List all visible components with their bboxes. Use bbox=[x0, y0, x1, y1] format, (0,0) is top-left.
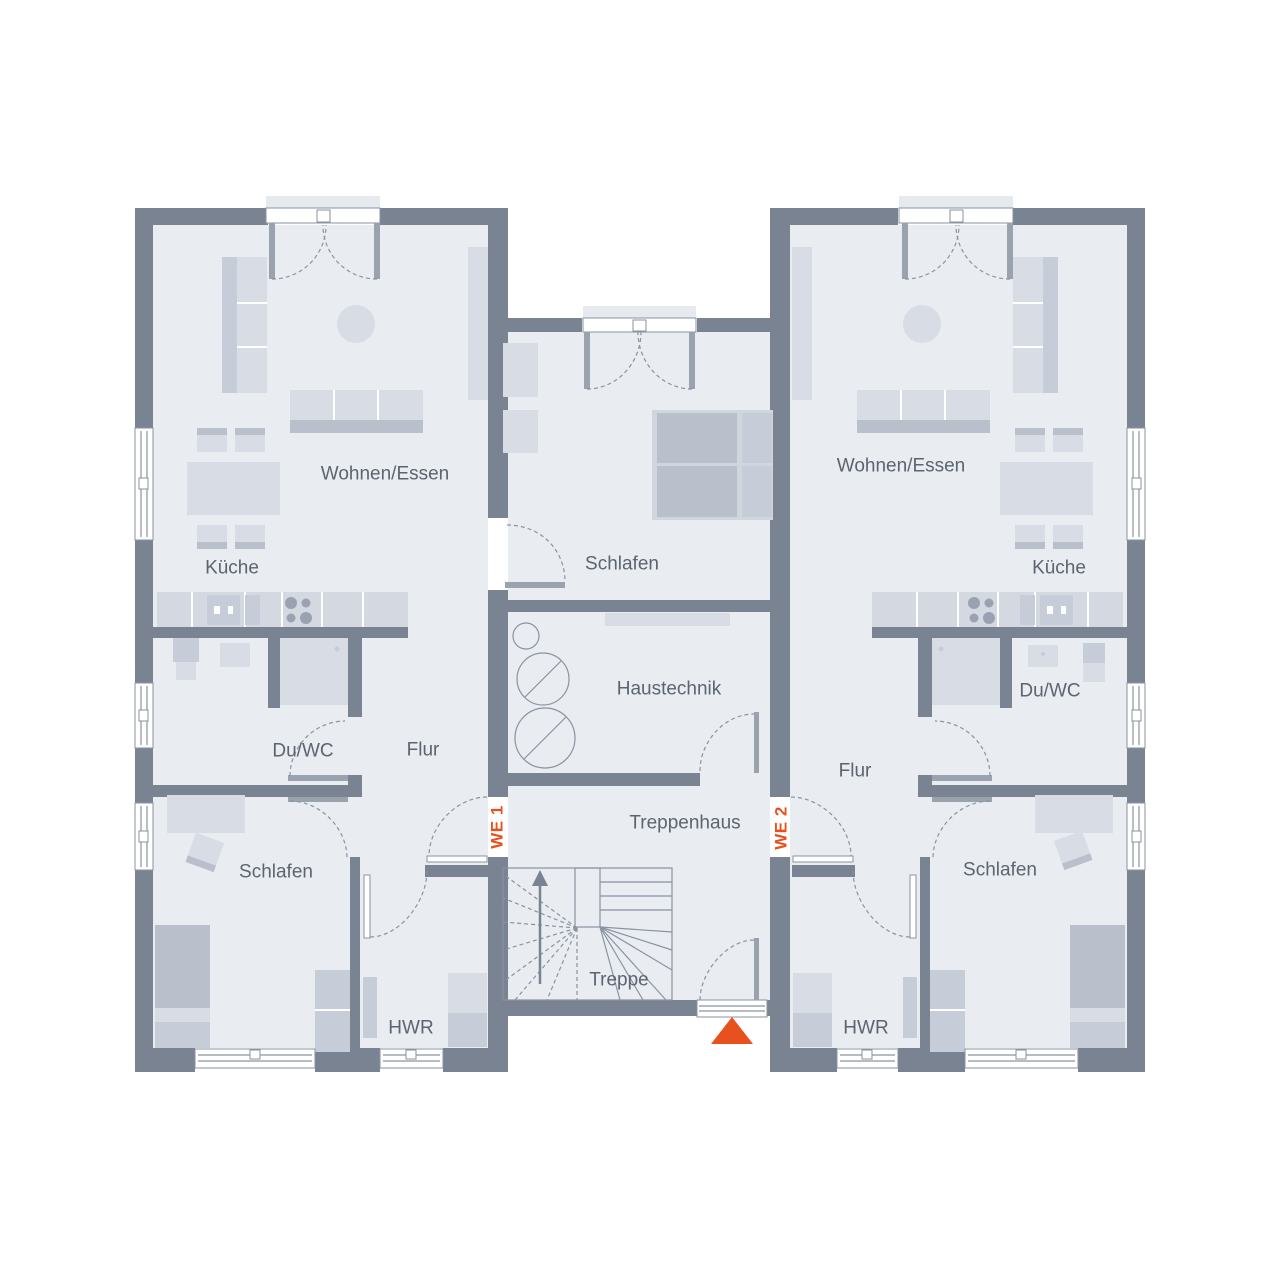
tall-cabinet bbox=[1013, 257, 1058, 393]
round-table bbox=[903, 305, 941, 343]
room-label-treppenhaus: Treppenhaus bbox=[629, 814, 740, 833]
toilet bbox=[173, 638, 199, 662]
round-table bbox=[337, 305, 375, 343]
room-label-schlafen-we2: Schlafen bbox=[963, 861, 1037, 880]
tall-cabinet bbox=[222, 257, 267, 393]
room-label-kueche-we2: Küche bbox=[1032, 559, 1086, 578]
dresser bbox=[1035, 795, 1113, 833]
room-label-hwr-we2: HWR bbox=[843, 1019, 888, 1038]
appliance bbox=[245, 595, 260, 625]
unit-badge-we2: WE 2 bbox=[773, 806, 790, 850]
cabinet bbox=[1083, 643, 1105, 663]
room-label-hwr-we1: HWR bbox=[388, 1019, 433, 1038]
room-label-duwc-we1: Du/WC bbox=[272, 742, 333, 761]
room-label-haustechnik: Haustechnik bbox=[617, 680, 722, 699]
room-label-schlafen-core: Schlafen bbox=[585, 555, 659, 574]
shelf bbox=[503, 410, 538, 453]
window bbox=[965, 1049, 1078, 1068]
bed bbox=[155, 925, 210, 1048]
wardrobe bbox=[930, 970, 965, 1052]
room-label-treppe: Treppe bbox=[589, 971, 649, 990]
window bbox=[135, 683, 153, 748]
room-label-flur-we2: Flur bbox=[839, 762, 872, 781]
unit-badge-we1: WE 1 bbox=[489, 805, 506, 849]
window bbox=[1127, 683, 1145, 748]
appliance bbox=[1020, 595, 1035, 625]
sideboard bbox=[468, 247, 488, 400]
room-label-duwc-we2: Du/WC bbox=[1019, 682, 1080, 701]
sideboard bbox=[792, 247, 812, 400]
window bbox=[135, 803, 153, 870]
double-bed bbox=[652, 410, 773, 520]
room-label-wohnen-essen-we2: Wohnen/Essen bbox=[837, 457, 966, 476]
room-label-kueche-we1: Küche bbox=[205, 559, 259, 578]
window bbox=[1127, 803, 1145, 870]
sofa bbox=[857, 390, 990, 433]
shelf bbox=[503, 343, 538, 397]
oven bbox=[1040, 595, 1073, 625]
floorplan-drawing bbox=[0, 0, 1280, 1280]
room-label-schlafen-we1: Schlafen bbox=[239, 863, 313, 882]
washbasin bbox=[220, 643, 250, 667]
floorplan: Wohnen/Essen Küche Du/WC Flur Schlafen H… bbox=[0, 0, 1280, 1280]
room-label-flur-we1: Flur bbox=[407, 741, 440, 760]
wardrobe bbox=[315, 970, 350, 1052]
kitchen-counter bbox=[157, 592, 408, 627]
room-label-wohnen-essen-we1: Wohnen/Essen bbox=[321, 465, 450, 484]
entrance-arrow-icon bbox=[711, 1017, 753, 1044]
window bbox=[380, 1049, 443, 1068]
window bbox=[135, 428, 153, 540]
bed bbox=[1070, 925, 1125, 1048]
window bbox=[837, 1049, 898, 1068]
window bbox=[1127, 428, 1145, 540]
dresser bbox=[167, 795, 245, 833]
oven bbox=[207, 595, 240, 625]
shelf bbox=[605, 613, 730, 626]
kitchen-counter bbox=[872, 592, 1123, 627]
sofa bbox=[290, 390, 423, 433]
window bbox=[195, 1049, 315, 1068]
